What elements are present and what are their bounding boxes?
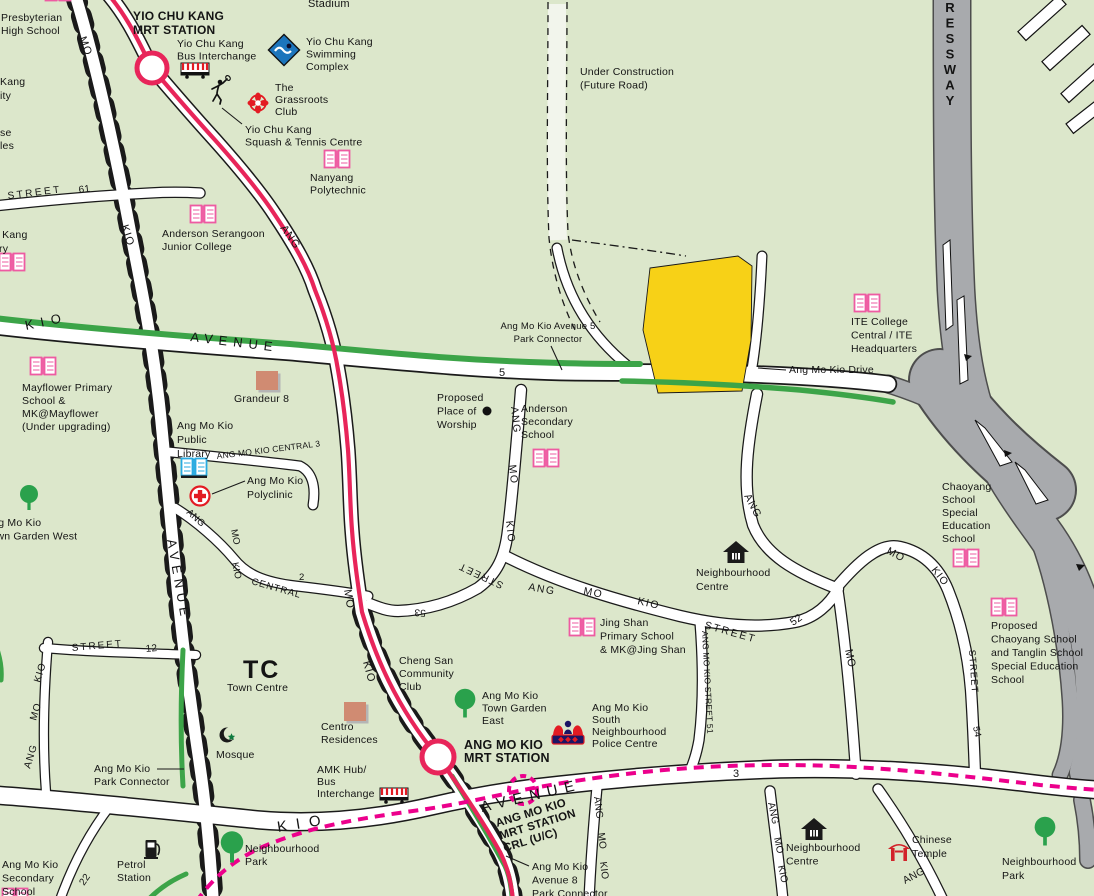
edge-frag-kang: Kang [0, 76, 25, 88]
map-stage: StadiumPresbyterianHigh SchoolYIO CHU KA… [0, 0, 1094, 896]
yellow-development-parcel [643, 256, 752, 393]
public-library-icon [181, 459, 207, 479]
stadium-label: Stadium [308, 0, 350, 10]
anderson-serangoon-jc-icon [191, 206, 216, 223]
edge-frag-ukang: u Kang [0, 229, 27, 241]
jing-shan-primary-icon [570, 619, 595, 636]
road4-mo: MO [506, 464, 520, 485]
st54-num: 54 [970, 725, 983, 738]
yio-chu-kang-mrt-label: YIO CHU KANGMRT STATION [133, 9, 224, 37]
chaoyang-school-icon [954, 550, 979, 567]
tc-logo: TC [243, 656, 280, 684]
presbyterian-label: PresbyterianHigh School [1, 12, 62, 37]
edge-frag-ity: ity [0, 90, 12, 102]
nanyang-polytechnic-icon [325, 151, 350, 168]
street-map-canvas[interactable]: StadiumPresbyterianHigh SchoolYIO CHU KA… [0, 0, 1094, 896]
ite-label: ITE CollegeCentral / ITEHeadquarters [851, 316, 917, 355]
school-icon-top-edge [46, 0, 71, 1]
proposed-worship-dot-icon [483, 407, 492, 416]
edge-frag-se: se [0, 127, 12, 139]
ite-college-icon [855, 295, 880, 312]
ave5-num-label: 5 [499, 367, 505, 379]
central2-num: 2 [299, 572, 304, 583]
st53-num: 53 [414, 606, 427, 618]
school-icon-left-edge [0, 254, 25, 271]
amk-drive-label: Ang Mo Kio Drive [789, 364, 874, 376]
road4-kio: KIO [503, 520, 517, 544]
street12-num: 12 [145, 643, 158, 655]
grandeur8-icon [256, 371, 281, 393]
amk-mrt-label: ANG MO KIOMRT STATION [464, 738, 550, 765]
edge-frag-ary: ary [0, 243, 9, 255]
mosque-label: Mosque [216, 749, 255, 761]
proposed-chaoyang-school-icon [992, 599, 1017, 616]
street61-num: 61 [78, 184, 91, 196]
mayflower-primary-icon [31, 358, 56, 375]
ave3-num-label: 3 [733, 768, 739, 780]
bv1-kio: KIO [597, 861, 610, 880]
grandeur8-label: Grandeur 8 [234, 393, 289, 405]
polyclinic-icon [191, 487, 210, 506]
edge-frag-les: les [0, 140, 14, 152]
bv1-mo: MO [595, 832, 608, 850]
anderson-secondary-icon [534, 450, 559, 467]
town-centre-label: Town Centre [227, 682, 288, 694]
yio-chu-kang-mrt-circle [137, 53, 167, 83]
ang-mo-kio-mrt-circle [422, 741, 454, 773]
